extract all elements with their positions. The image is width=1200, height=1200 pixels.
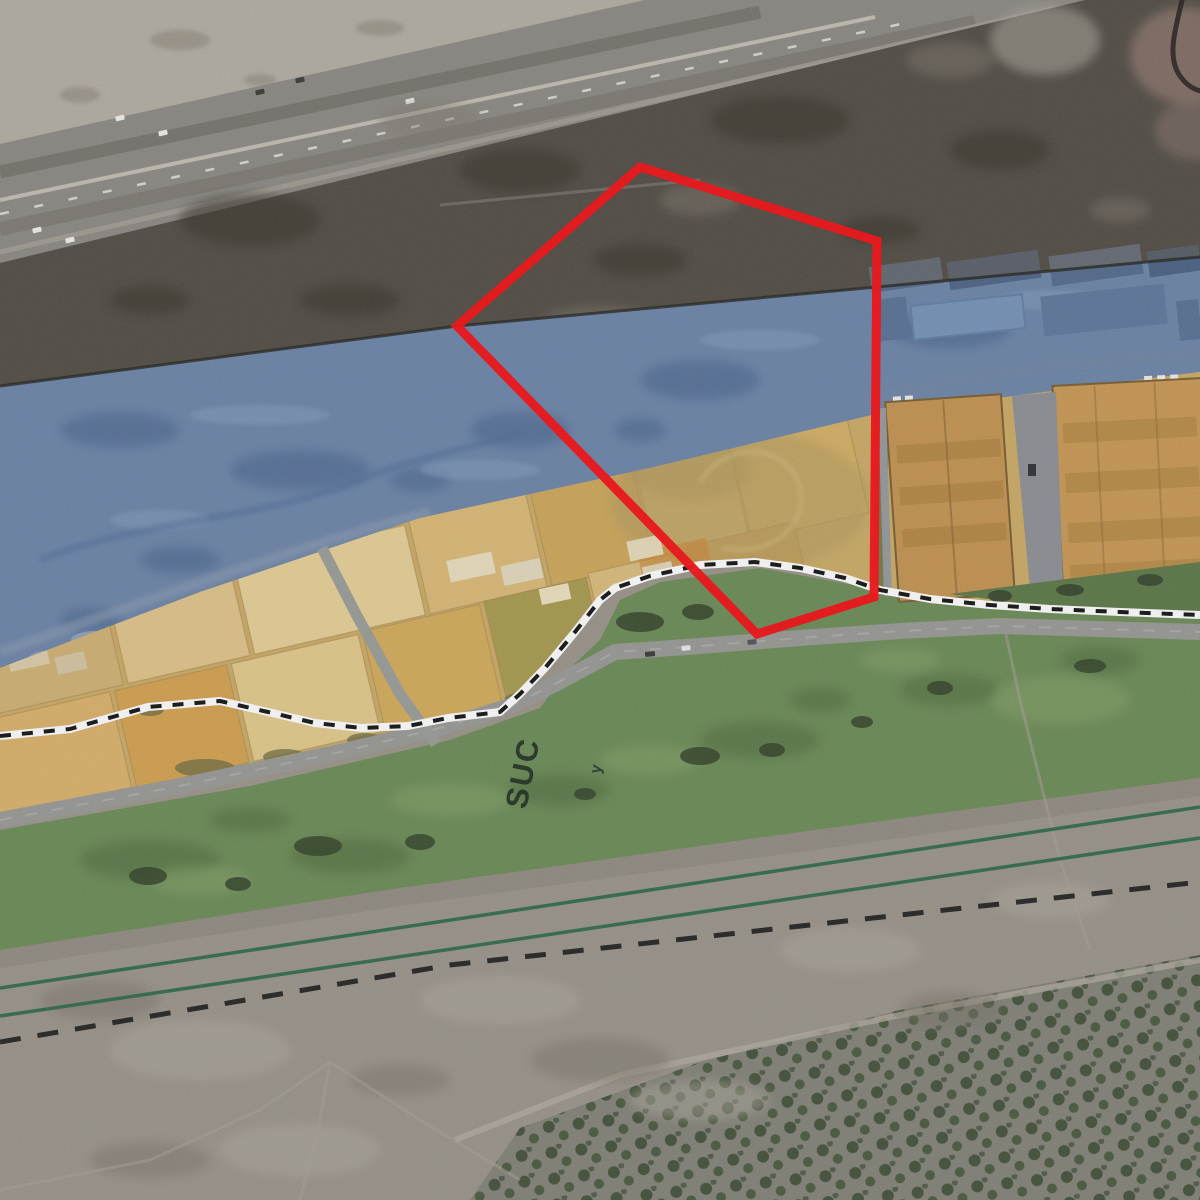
- aerial-zoning-map-screenshot: SUC y: [0, 0, 1200, 1200]
- photo-grain-light: [0, 0, 1200, 1200]
